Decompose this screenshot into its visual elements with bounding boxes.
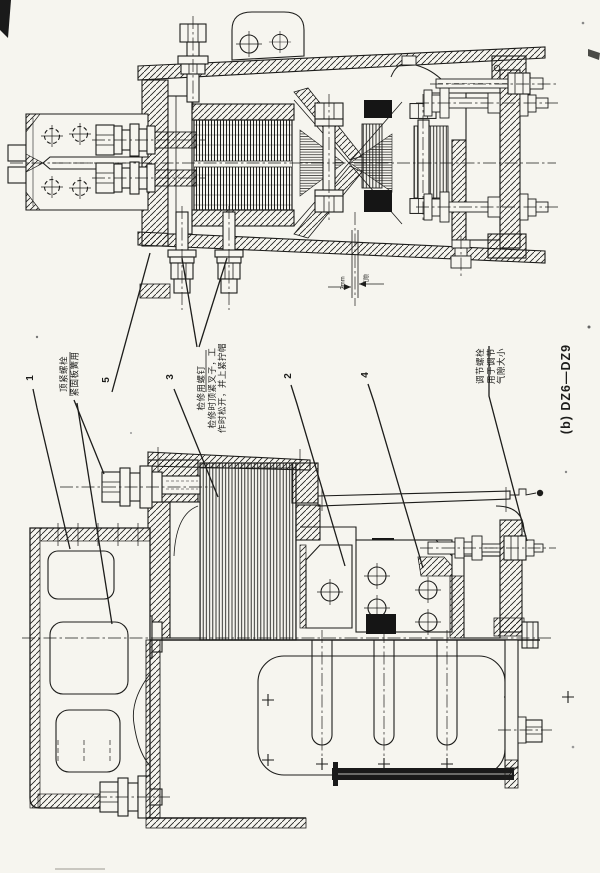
fork-yoke [8,114,148,210]
callout-number-2: 2 [283,373,296,379]
top-adjust-screw [436,73,543,94]
contact-block-left [306,545,352,628]
coil-winding-section [192,104,294,226]
finned-bracket [30,523,150,808]
armature-plate [318,491,510,506]
air-gap-dimension [328,230,384,298]
bottom-view-section [22,447,574,828]
callout-number-5: 5 [101,377,114,383]
rubber-block-top [364,100,392,118]
contact-block-black-bottom [366,614,396,634]
leader-service-b [199,258,227,347]
dimension-gap-label: 气隙 [364,274,372,286]
figure-caption: (b) DZ6—DZ9 [559,344,575,434]
mounting-ear [232,12,304,60]
callout-number-1: 1 [25,375,38,381]
end-cap [494,506,538,648]
label-adjust-bolt: 调节螺栓 用于调节 气隙大小 [475,348,507,384]
leader-1 [33,389,70,549]
rubber-block-bottom [364,190,392,212]
label-top-tighten-bolt: 顶紧螺栓 紧固板簧用 [58,351,79,396]
lamination-stack-a [362,124,382,188]
base-plate [146,640,574,828]
leader-5 [112,253,150,392]
callout-number-3: 3 [165,374,178,380]
scanned-technical-drawing-page: 1 5 3 2 4 顶紧螺栓 紧固板簧用 检修用螺钉 检修时顶紧叉子，工 作时松… [0,0,600,873]
technical-drawing-canvas [0,0,600,873]
callout-number-4: 4 [360,372,373,378]
top-view-section [8,12,558,310]
label-service-screw: 检修用螺钉 检修时顶紧叉子，工 作时松开，并上紧拧帽 [196,343,228,433]
dimension-gap-value: 2mm [340,276,348,289]
